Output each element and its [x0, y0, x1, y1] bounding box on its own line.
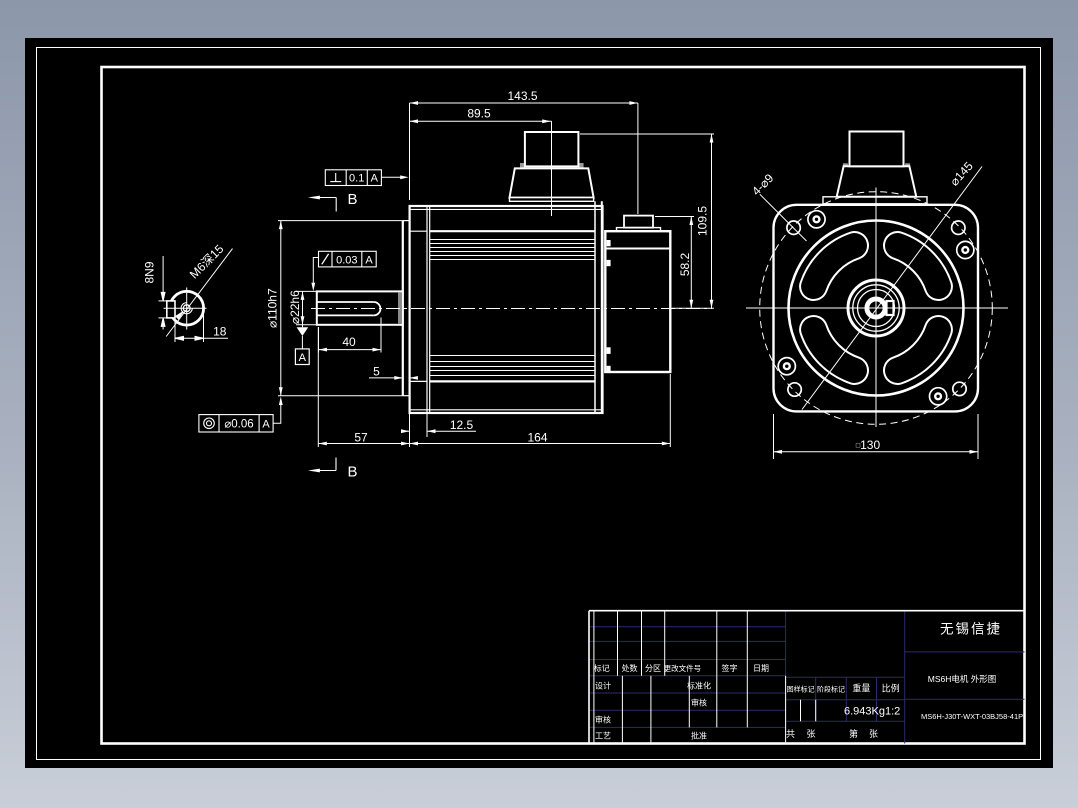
- svg-text:审核: 审核: [595, 715, 611, 725]
- svg-text:分区: 分区: [645, 664, 661, 673]
- svg-text:标记: 标记: [594, 663, 610, 673]
- svg-text:12.5: 12.5: [450, 418, 474, 432]
- svg-text:8N9: 8N9: [143, 261, 157, 283]
- svg-text:0.03: 0.03: [336, 254, 357, 266]
- svg-text:共: 共: [786, 729, 795, 739]
- svg-text:设计: 设计: [595, 681, 611, 691]
- svg-text:比例: 比例: [882, 683, 900, 694]
- svg-text:A: A: [299, 352, 307, 364]
- svg-text:6.943Kg1:2: 6.943Kg1:2: [844, 706, 900, 718]
- svg-text:⌀110h7: ⌀110h7: [266, 288, 280, 328]
- svg-text:MS6H-J30T-WXT-03BJ58-41P: MS6H-J30T-WXT-03BJ58-41P: [921, 712, 1023, 721]
- svg-text:⌀22h6: ⌀22h6: [288, 290, 302, 324]
- svg-text:张: 张: [869, 729, 878, 739]
- svg-text:处数: 处数: [622, 663, 638, 673]
- svg-text:审核: 审核: [691, 698, 707, 708]
- svg-text:57: 57: [354, 430, 368, 444]
- svg-text:张: 张: [806, 729, 815, 739]
- svg-text:阶段标记: 阶段标记: [817, 685, 845, 694]
- svg-text:签字: 签字: [722, 663, 738, 673]
- svg-text:A: A: [262, 419, 270, 431]
- svg-text:批准: 批准: [691, 731, 707, 741]
- svg-text:□130: □130: [856, 438, 881, 452]
- svg-text:图样标记: 图样标记: [787, 685, 815, 694]
- svg-text:标准化: 标准化: [687, 681, 711, 691]
- svg-text:5: 5: [373, 364, 380, 378]
- svg-text:A: A: [365, 254, 373, 266]
- svg-text:B: B: [347, 191, 357, 208]
- svg-text:89.5: 89.5: [467, 107, 491, 121]
- svg-text:0.1: 0.1: [349, 173, 364, 185]
- svg-text:B: B: [347, 464, 357, 481]
- svg-text:143.5: 143.5: [507, 89, 537, 103]
- svg-text:第: 第: [849, 728, 858, 739]
- svg-text:58.2: 58.2: [678, 252, 692, 276]
- svg-text:109.5: 109.5: [696, 206, 710, 236]
- svg-text:更改文件号: 更改文件号: [664, 663, 702, 673]
- svg-text:MS6H电机 外形图: MS6H电机 外形图: [928, 674, 996, 684]
- svg-text:18: 18: [213, 325, 227, 339]
- svg-text:工艺: 工艺: [595, 732, 611, 741]
- svg-text:无锡信捷: 无锡信捷: [940, 622, 1002, 637]
- svg-text:⌀0.06: ⌀0.06: [224, 419, 253, 431]
- svg-text:日期: 日期: [753, 664, 769, 673]
- svg-text:A: A: [371, 173, 379, 185]
- svg-text:164: 164: [527, 430, 547, 444]
- svg-text:重量: 重量: [852, 683, 870, 694]
- svg-text:40: 40: [342, 335, 356, 349]
